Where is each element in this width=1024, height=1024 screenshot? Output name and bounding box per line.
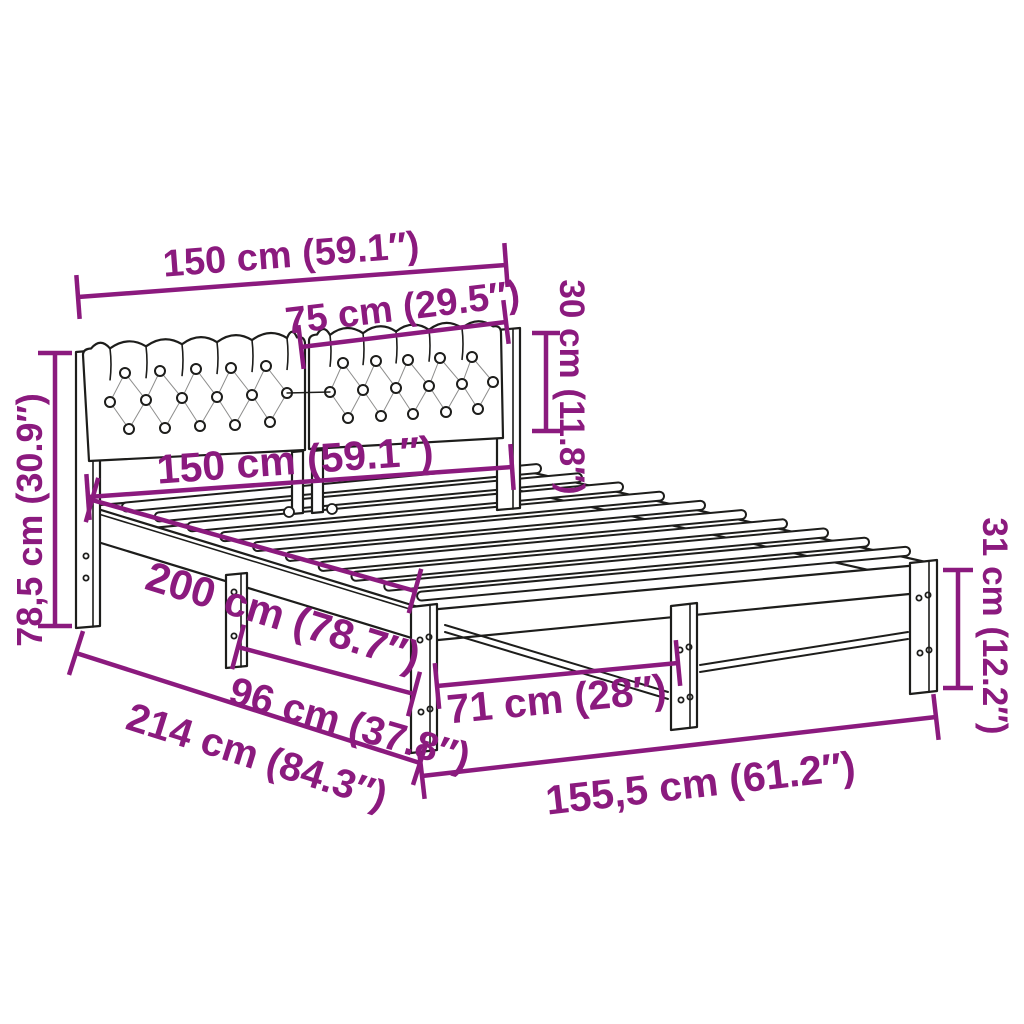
- support-brace: [700, 632, 908, 665]
- dim-label-cushion-height: 30 cm (11.8″): [552, 279, 591, 494]
- cushion-button: [265, 417, 275, 427]
- cushion-button: [141, 395, 151, 405]
- dim-label-headboard-height: 78,5 cm (30.9″): [9, 393, 50, 646]
- dim-label-foot-leg-spacing: 71 cm (28″): [445, 666, 669, 733]
- diagram-canvas: 150 cm (59.1″) 75 cm (29.5″) 30 cm (11.8…: [0, 0, 1024, 1024]
- cushion-button: [473, 404, 483, 414]
- cushion-button: [371, 356, 381, 366]
- cushion-button: [212, 392, 222, 402]
- foot-right-leg: [910, 560, 937, 694]
- dim-label-leg-height: 31 cm (12.2″): [975, 517, 1014, 734]
- cushion-button: [358, 385, 368, 395]
- cushion-button: [391, 383, 401, 393]
- cushion-button: [160, 423, 170, 433]
- cushion-button: [120, 368, 130, 378]
- cushion-button: [343, 413, 353, 423]
- cushion-button: [230, 420, 240, 430]
- support-brace: [700, 639, 908, 672]
- cushion-button: [408, 409, 418, 419]
- mounting-bracket: [284, 507, 294, 517]
- cushion-button: [226, 363, 236, 373]
- cushion-button: [467, 352, 477, 362]
- cushion-button: [247, 390, 257, 400]
- cushion-button: [124, 424, 134, 434]
- cushion-button: [441, 407, 451, 417]
- cushion-button: [177, 393, 187, 403]
- cushion-button: [261, 361, 271, 371]
- cushion-button: [155, 366, 165, 376]
- cushion-button: [338, 358, 348, 368]
- cushion-button: [488, 377, 498, 387]
- cushion-button: [403, 355, 413, 365]
- cushion-button: [424, 381, 434, 391]
- center-leg: [671, 603, 697, 730]
- cushion-button: [105, 397, 115, 407]
- cushion-button: [435, 353, 445, 363]
- cushion-button: [191, 364, 201, 374]
- cushion-button: [195, 421, 205, 431]
- dim-leg-height: [943, 570, 973, 688]
- cushion-button: [376, 411, 386, 421]
- bed-dimension-diagram: 150 cm (59.1″) 75 cm (29.5″) 30 cm (11.8…: [0, 0, 1024, 1024]
- mounting-bracket: [327, 504, 337, 514]
- cushion-button: [457, 379, 467, 389]
- cushion-link-line: [287, 392, 330, 393]
